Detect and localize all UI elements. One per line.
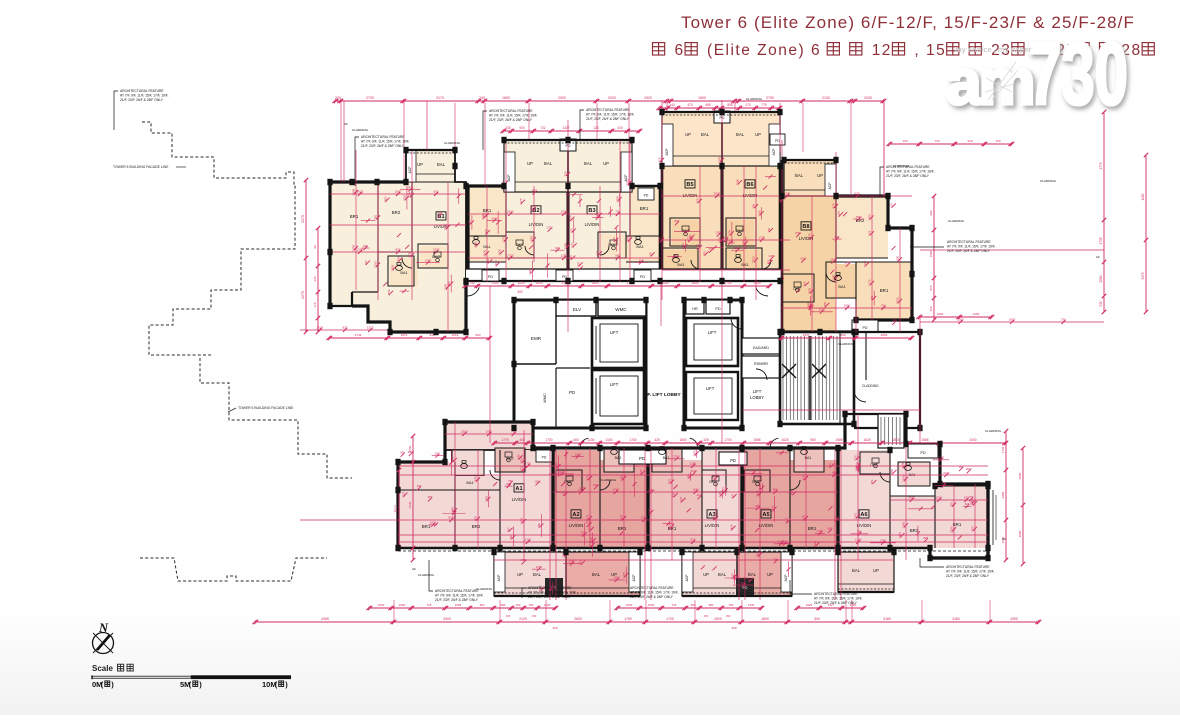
svg-text:, 15: , 15 <box>914 42 946 59</box>
svg-text:3015: 3015 <box>394 505 398 512</box>
svg-text:980: 980 <box>537 523 541 528</box>
svg-text:300: 300 <box>814 617 820 621</box>
svg-text:1150: 1150 <box>1141 193 1145 200</box>
svg-text:825: 825 <box>702 251 706 256</box>
svg-text:150: 150 <box>959 465 964 469</box>
svg-text:CLADDING: CLADDING <box>746 97 763 101</box>
svg-text:2430: 2430 <box>491 216 498 220</box>
svg-text:90: 90 <box>313 245 317 249</box>
svg-text:2030: 2030 <box>753 281 760 285</box>
svg-text:150: 150 <box>726 614 731 618</box>
svg-text:1500: 1500 <box>626 236 630 243</box>
svg-text:2430: 2430 <box>484 228 488 235</box>
svg-text:1180: 1180 <box>692 488 699 492</box>
svg-text:BAL: BAL <box>544 161 553 166</box>
svg-text:21/F, 23/F, 26/F & 28/F ONLY: 21/F, 23/F, 26/F & 28/F ONLY <box>489 118 533 122</box>
svg-text:1500: 1500 <box>855 215 862 219</box>
svg-text:750: 750 <box>881 304 886 308</box>
svg-text:950: 950 <box>810 438 816 442</box>
svg-text:ACP: ACP <box>632 574 636 582</box>
svg-text:1180: 1180 <box>561 254 568 258</box>
svg-text:2100: 2100 <box>483 250 487 257</box>
svg-text:150: 150 <box>639 258 644 262</box>
svg-text:2300: 2300 <box>507 210 514 214</box>
svg-text:1375: 1375 <box>502 236 506 243</box>
svg-text:LIFT: LIFT <box>708 330 717 335</box>
svg-text:300: 300 <box>552 626 557 630</box>
svg-text:BAL: BAL <box>736 132 745 137</box>
svg-text:1625: 1625 <box>730 573 734 580</box>
svg-text:2430: 2430 <box>639 469 643 476</box>
svg-text:2130: 2130 <box>822 96 830 100</box>
svg-text:125: 125 <box>593 126 599 130</box>
svg-text:980: 980 <box>438 211 443 215</box>
svg-text:2300: 2300 <box>498 249 502 256</box>
svg-text:150: 150 <box>790 490 794 495</box>
svg-text:750: 750 <box>668 479 672 484</box>
svg-text:CLADDING: CLADDING <box>985 429 1002 433</box>
svg-text:1180: 1180 <box>693 450 697 456</box>
svg-text:LIFT: LIFT <box>610 382 619 387</box>
svg-text:AF: AF <box>344 122 348 126</box>
svg-text:1375: 1375 <box>727 239 734 243</box>
svg-text:205: 205 <box>505 126 511 130</box>
svg-text:900: 900 <box>506 527 510 532</box>
svg-text:LIV/DIN: LIV/DIN <box>529 222 544 227</box>
svg-text:AT 7/F, 9/F, 11/F, 15/F, 17/F,: AT 7/F, 9/F, 11/F, 15/F, 17/F, 19/F, <box>630 591 678 595</box>
svg-text:1500: 1500 <box>965 467 972 471</box>
svg-text:2750: 2750 <box>795 231 802 235</box>
svg-text:1050: 1050 <box>516 454 520 461</box>
svg-text:2100: 2100 <box>696 493 703 497</box>
svg-text:1625: 1625 <box>534 479 541 483</box>
svg-text:1050: 1050 <box>383 196 387 203</box>
svg-text:1180: 1180 <box>474 476 478 483</box>
svg-text:LIV/DIN: LIV/DIN <box>857 523 872 528</box>
svg-text:425: 425 <box>703 438 709 442</box>
svg-text:2430: 2430 <box>830 257 837 261</box>
svg-text:1050: 1050 <box>896 297 900 304</box>
svg-text:HR: HR <box>692 307 698 311</box>
svg-text:BA1: BA1 <box>838 285 845 289</box>
svg-text:150: 150 <box>729 603 734 607</box>
svg-text:1900: 1900 <box>399 603 406 607</box>
svg-text:AF: AF <box>412 567 416 571</box>
svg-text:980: 980 <box>363 244 368 248</box>
svg-text:1050: 1050 <box>425 258 432 262</box>
svg-text:1625: 1625 <box>863 438 870 442</box>
svg-text:2743: 2743 <box>355 333 362 337</box>
svg-text:AT 7/F, 9/F, 11/F, 15/F, 17/F,: AT 7/F, 9/F, 11/F, 15/F, 17/F, 19/F, <box>886 170 934 174</box>
svg-text:1025: 1025 <box>517 281 524 285</box>
svg-text:2100: 2100 <box>813 541 817 548</box>
svg-text:2080: 2080 <box>1018 472 1022 479</box>
svg-text:3180: 3180 <box>952 617 960 621</box>
svg-text:2300: 2300 <box>620 474 624 481</box>
svg-text:LIFT: LIFT <box>753 389 762 394</box>
svg-text:150: 150 <box>579 560 583 565</box>
svg-text:1750: 1750 <box>624 617 632 621</box>
svg-text:1735: 1735 <box>1099 237 1103 244</box>
svg-text:815: 815 <box>929 285 933 290</box>
svg-text:2300: 2300 <box>461 430 468 434</box>
svg-text:am: am <box>946 46 1033 118</box>
svg-text:825: 825 <box>671 492 675 497</box>
svg-text:175: 175 <box>313 302 317 307</box>
svg-text:350: 350 <box>929 306 933 311</box>
svg-text:1800: 1800 <box>502 96 510 100</box>
svg-text:980: 980 <box>509 534 513 539</box>
svg-text:2750: 2750 <box>612 488 619 492</box>
svg-text:AT 7/F, 9/F, 11/F, 15/F, 17/F,: AT 7/F, 9/F, 11/F, 15/F, 17/F, 19/F, <box>947 245 995 249</box>
svg-text:1375: 1375 <box>519 198 523 205</box>
svg-text:BAL: BAL <box>584 161 593 166</box>
svg-text:21/F, 23/F, 26/F & 28/F ONLY: 21/F, 23/F, 26/F & 28/F ONLY <box>947 249 991 253</box>
svg-text:PD: PD <box>542 456 547 460</box>
svg-text:2430: 2430 <box>407 185 414 189</box>
svg-text:4390: 4390 <box>1010 617 1018 621</box>
svg-text:150: 150 <box>612 237 616 242</box>
svg-text:CLADDING: CLADDING <box>418 573 435 577</box>
svg-text:750: 750 <box>950 502 954 507</box>
svg-text:PD: PD <box>715 307 721 311</box>
svg-text:2100: 2100 <box>658 236 662 243</box>
svg-text:1180: 1180 <box>484 495 488 501</box>
svg-text:900: 900 <box>447 281 451 286</box>
svg-text:2430: 2430 <box>528 268 532 275</box>
svg-text:900: 900 <box>828 527 833 531</box>
svg-text:1050: 1050 <box>352 244 356 251</box>
svg-text:1050: 1050 <box>800 257 807 261</box>
svg-text:625: 625 <box>832 203 836 208</box>
svg-text:ARCHITECTURAL FEATURE: ARCHITECTURAL FEATURE <box>489 109 533 113</box>
svg-text:1625: 1625 <box>647 508 651 515</box>
svg-text:940: 940 <box>967 139 972 143</box>
svg-text:1500: 1500 <box>520 517 524 524</box>
svg-text:150: 150 <box>704 614 709 618</box>
svg-text:2100: 2100 <box>316 326 323 330</box>
svg-text:3025: 3025 <box>908 496 915 500</box>
svg-text:1050: 1050 <box>867 214 871 221</box>
svg-text:2750: 2750 <box>387 289 391 296</box>
svg-text:3180: 3180 <box>883 617 891 621</box>
svg-text:B6: B6 <box>746 182 753 188</box>
svg-text:1180: 1180 <box>778 540 784 544</box>
svg-text:2620: 2620 <box>714 617 722 621</box>
svg-text:BAL: BAL <box>748 572 757 577</box>
svg-text:CLADDING: CLADDING <box>1040 179 1057 183</box>
svg-text:625: 625 <box>562 491 566 496</box>
svg-text:EMR: EMR <box>531 336 542 341</box>
svg-text:1600: 1600 <box>698 96 706 100</box>
svg-text:1625: 1625 <box>806 302 810 309</box>
svg-text:BA1: BA1 <box>636 245 643 249</box>
svg-text:350: 350 <box>480 603 485 607</box>
svg-text:300: 300 <box>731 626 736 630</box>
svg-text:BR1: BR1 <box>618 526 627 531</box>
svg-text:UP: UP <box>517 572 523 577</box>
svg-text:2100: 2100 <box>524 538 531 542</box>
svg-text:715: 715 <box>427 603 432 607</box>
svg-text:1050: 1050 <box>561 210 568 214</box>
svg-text:UP: UP <box>527 161 533 166</box>
svg-text:BAL: BAL <box>437 162 446 167</box>
svg-text:UP: UP <box>703 572 709 577</box>
svg-text:900: 900 <box>773 488 778 492</box>
svg-text:1000: 1000 <box>378 603 385 607</box>
svg-text:2300: 2300 <box>957 318 964 322</box>
svg-text:900: 900 <box>828 463 832 468</box>
svg-text:750: 750 <box>564 171 568 176</box>
svg-text:1180: 1180 <box>817 529 823 533</box>
svg-text:750: 750 <box>486 258 490 263</box>
svg-text:150: 150 <box>870 295 874 300</box>
svg-text:1500: 1500 <box>395 190 402 194</box>
svg-text:A2: A2 <box>572 512 579 518</box>
svg-text:6: 6 <box>674 42 684 59</box>
svg-text:ARCHITECTURAL FEATURE: ARCHITECTURAL FEATURE <box>947 240 991 244</box>
svg-text:2300: 2300 <box>896 256 900 263</box>
svg-text:A6: A6 <box>860 512 867 518</box>
svg-text:715: 715 <box>672 603 677 607</box>
svg-text:2300: 2300 <box>716 230 723 234</box>
svg-text:1375: 1375 <box>536 565 543 569</box>
svg-text:825: 825 <box>690 538 695 542</box>
svg-text:21/F, 23/F, 26/F & 28/F ONLY: 21/F, 23/F, 26/F & 28/F ONLY <box>946 574 990 578</box>
svg-text:2100: 2100 <box>403 194 407 201</box>
svg-text:1375: 1375 <box>367 326 374 330</box>
svg-text:PD: PD <box>644 194 649 198</box>
svg-text:2080: 2080 <box>1099 275 1103 282</box>
svg-text:980: 980 <box>857 530 862 534</box>
svg-text:1050: 1050 <box>718 236 722 243</box>
svg-text:ACP: ACP <box>408 166 412 174</box>
svg-text:BR1: BR1 <box>808 526 817 531</box>
svg-text:12: 12 <box>872 42 892 59</box>
svg-text:CLADDING: CLADDING <box>600 478 617 482</box>
svg-text:1000: 1000 <box>626 603 633 607</box>
svg-text:625: 625 <box>730 493 734 498</box>
svg-text:200: 200 <box>335 96 341 100</box>
svg-text:LIFT: LIFT <box>706 386 715 391</box>
svg-text:4050: 4050 <box>881 333 888 337</box>
svg-text:AT 7/F, 9/F, 11/F, 15/F, 17/F,: AT 7/F, 9/F, 11/F, 15/F, 17/F, 19/F, <box>528 591 576 595</box>
svg-text:1585: 1585 <box>753 438 760 442</box>
svg-text:UP: UP <box>603 161 609 166</box>
svg-text:625: 625 <box>434 190 439 194</box>
svg-text:CLADDING: CLADDING <box>862 384 879 388</box>
svg-text:2100: 2100 <box>742 239 746 246</box>
svg-text:2100: 2100 <box>494 260 498 267</box>
svg-text:1900: 1900 <box>648 603 655 607</box>
svg-text:935: 935 <box>1099 301 1103 307</box>
svg-text:3025: 3025 <box>444 223 448 230</box>
svg-text:AT 7/F, 9/F, 11/F, 15/F, 17/F,: AT 7/F, 9/F, 11/F, 15/F, 17/F, 19/F, <box>586 113 634 117</box>
svg-text:LIV/DIN: LIV/DIN <box>585 222 600 227</box>
svg-text:BA1: BA1 <box>741 263 748 267</box>
svg-text:2750: 2750 <box>752 256 756 263</box>
svg-text:150: 150 <box>595 213 600 217</box>
svg-text:1500: 1500 <box>728 230 732 237</box>
svg-text:825: 825 <box>747 577 751 582</box>
svg-text:2100: 2100 <box>568 215 572 222</box>
svg-text:4300: 4300 <box>443 617 451 621</box>
svg-text:625: 625 <box>802 475 806 480</box>
svg-text:3025: 3025 <box>357 190 364 194</box>
svg-text:1375: 1375 <box>696 244 700 251</box>
svg-text:2400: 2400 <box>969 438 976 442</box>
svg-text:PD: PD <box>775 139 780 143</box>
svg-text:AT 7/F, 9/F, 11/F, 15/F, 17/F,: AT 7/F, 9/F, 11/F, 15/F, 17/F, 19/F, <box>120 94 168 98</box>
svg-text:825: 825 <box>468 220 472 225</box>
svg-text:900: 900 <box>474 516 478 521</box>
svg-text:A1: A1 <box>515 486 522 492</box>
svg-text:BAL: BAL <box>795 173 804 178</box>
svg-text:1180: 1180 <box>580 486 586 490</box>
svg-text:BA1: BA1 <box>663 456 670 460</box>
svg-text:825: 825 <box>586 475 590 480</box>
svg-text:300: 300 <box>741 581 746 585</box>
svg-text:2750: 2750 <box>766 96 774 100</box>
svg-text:AF: AF <box>1002 537 1006 541</box>
svg-text:WMC: WMC <box>615 307 627 312</box>
svg-text:1500: 1500 <box>756 551 760 558</box>
svg-text:EAD/ARD: EAD/ARD <box>753 346 769 350</box>
svg-text:CLADDING: CLADDING <box>838 342 855 346</box>
svg-text:235: 235 <box>313 276 317 281</box>
svg-text:my choice , my paper: my choice , my paper <box>955 45 1031 54</box>
svg-text:900: 900 <box>755 504 760 508</box>
svg-text:ARCHITECTURAL FEATURE: ARCHITECTURAL FEATURE <box>361 135 405 139</box>
svg-text:825: 825 <box>675 219 680 223</box>
svg-text:UP: UP <box>417 162 423 167</box>
svg-text:1585: 1585 <box>921 438 928 442</box>
svg-text:2750: 2750 <box>890 468 894 475</box>
svg-text:2300: 2300 <box>352 188 356 195</box>
svg-text:825: 825 <box>395 248 400 252</box>
svg-text:CLADDING: CLADDING <box>893 164 910 168</box>
svg-text:1500: 1500 <box>641 516 648 520</box>
svg-text:2430: 2430 <box>408 450 415 454</box>
svg-text:2920: 2920 <box>558 96 566 100</box>
svg-text:(Elite Zone) 6: (Elite Zone) 6 <box>707 42 821 59</box>
svg-text:2300: 2300 <box>902 475 906 482</box>
svg-text:625: 625 <box>555 246 560 250</box>
svg-text:2750: 2750 <box>547 225 554 229</box>
svg-text:2120: 2120 <box>519 617 527 621</box>
svg-text:4330: 4330 <box>408 501 412 508</box>
svg-text:3175: 3175 <box>1141 272 1145 279</box>
svg-text:1050: 1050 <box>844 304 851 308</box>
svg-text:1050: 1050 <box>902 522 906 529</box>
svg-text:900: 900 <box>712 515 716 520</box>
svg-text:1100: 1100 <box>588 438 595 442</box>
svg-text:2600: 2600 <box>574 617 582 621</box>
svg-text:PD: PD <box>639 456 645 461</box>
svg-text:1050: 1050 <box>648 488 655 492</box>
svg-text:825: 825 <box>696 198 700 203</box>
svg-text:PD: PD <box>569 390 575 395</box>
svg-text:1430: 1430 <box>544 603 551 607</box>
svg-text:825: 825 <box>923 536 928 540</box>
svg-text:1800: 1800 <box>679 438 686 442</box>
svg-text:UP: UP <box>817 173 823 178</box>
svg-text:21/F, 23/F, 26/F & 28/F ONLY: 21/F, 23/F, 26/F & 28/F ONLY <box>528 595 572 599</box>
svg-text:750: 750 <box>751 469 756 473</box>
svg-text:980: 980 <box>686 474 690 479</box>
svg-text:BAL: BAL <box>718 572 727 577</box>
svg-text:21/F, 23/F, 26/F & 28/F ONLY: 21/F, 23/F, 26/F & 28/F ONLY <box>886 174 930 178</box>
svg-text:2020: 2020 <box>608 96 616 100</box>
svg-text:1775: 1775 <box>501 438 508 442</box>
svg-text:900: 900 <box>400 451 405 455</box>
svg-text:ACP: ACP <box>828 182 832 190</box>
svg-text:B8: B8 <box>802 224 809 230</box>
svg-text:ELV: ELV <box>573 307 582 312</box>
svg-text:1625: 1625 <box>863 260 867 267</box>
svg-text:1180: 1180 <box>734 246 740 250</box>
svg-text:890: 890 <box>929 210 933 215</box>
svg-text:2750: 2750 <box>880 539 887 543</box>
svg-text:BR1: BR1 <box>640 206 649 211</box>
svg-text:PD: PD <box>863 326 868 330</box>
svg-text:715: 715 <box>934 139 939 143</box>
svg-text:B5: B5 <box>686 182 693 188</box>
svg-text:2275: 2275 <box>301 291 305 299</box>
svg-text:400: 400 <box>573 438 579 442</box>
svg-text:UP: UP <box>755 132 761 137</box>
svg-text:1625: 1625 <box>581 531 585 538</box>
svg-text:2300: 2300 <box>718 156 722 163</box>
svg-text:21/F, 23/F, 26/F & 28/F ONLY: 21/F, 23/F, 26/F & 28/F ONLY <box>120 98 164 102</box>
svg-text:1250: 1250 <box>973 312 980 316</box>
svg-text:2750: 2750 <box>507 254 514 258</box>
svg-text:775: 775 <box>761 103 767 107</box>
svg-text:TOWER 5 BUILDING FACADE LINE: TOWER 5 BUILDING FACADE LINE <box>238 406 294 410</box>
svg-text:1500: 1500 <box>520 558 527 562</box>
svg-text:2100: 2100 <box>691 469 698 473</box>
svg-text:625: 625 <box>890 203 894 208</box>
svg-text:BA1: BA1 <box>805 456 812 460</box>
svg-text:21/F, 23/F, 26/F & 28/F ONLY: 21/F, 23/F, 26/F & 28/F ONLY <box>630 595 674 599</box>
svg-text:ACP: ACP <box>784 574 788 582</box>
svg-text:2100: 2100 <box>681 243 685 250</box>
svg-text:21/F, 23/F, 26/F & 28/F ONLY: 21/F, 23/F, 26/F & 28/F ONLY <box>814 601 858 605</box>
svg-text:240: 240 <box>479 96 485 100</box>
svg-text:AT 7/F, 9/F, 11/F, 15/F, 17/F,: AT 7/F, 9/F, 11/F, 15/F, 17/F, 19/F, <box>814 597 862 601</box>
svg-text:LIFT: LIFT <box>610 330 619 335</box>
svg-text:2300: 2300 <box>615 196 619 203</box>
svg-text:AT 7/F, 9/F, 11/F, 15/F, 17/F,: AT 7/F, 9/F, 11/F, 15/F, 17/F, 19/F, <box>435 594 483 598</box>
svg-text:UP: UP <box>685 132 691 137</box>
svg-text:1427: 1427 <box>562 126 569 130</box>
svg-text:4365: 4365 <box>321 617 329 621</box>
svg-text:170: 170 <box>745 103 751 107</box>
svg-text:ARCHITECTURAL FEATURE: ARCHITECTURAL FEATURE <box>435 589 479 593</box>
svg-text:BAL: BAL <box>592 572 601 577</box>
svg-text:1375: 1375 <box>868 279 872 286</box>
svg-text:BA1: BA1 <box>615 456 622 460</box>
svg-text:2750: 2750 <box>564 242 568 249</box>
svg-text:21/F, 23/F, 26/F & 28/F ONLY: 21/F, 23/F, 26/F & 28/F ONLY <box>435 598 479 602</box>
svg-text:PD: PD <box>730 458 736 463</box>
svg-text:825: 825 <box>576 261 580 266</box>
svg-text:BR2: BR2 <box>472 524 481 529</box>
svg-text:CLADDING: CLADDING <box>352 128 369 132</box>
svg-text:1375: 1375 <box>758 236 765 240</box>
svg-text:1375: 1375 <box>837 211 841 218</box>
svg-text:3025: 3025 <box>714 192 721 196</box>
